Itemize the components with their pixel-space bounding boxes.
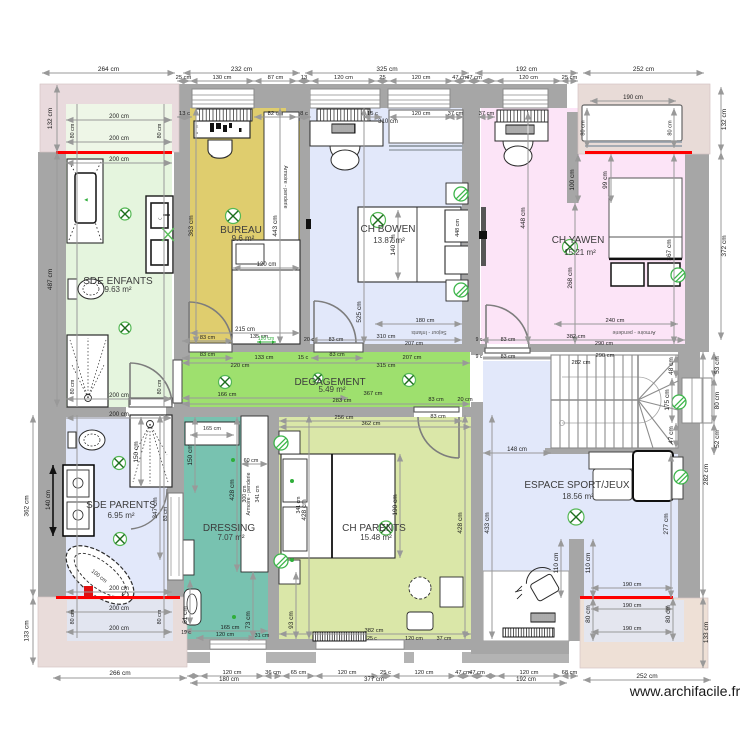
svg-text:99 cm: 99 cm	[602, 171, 609, 189]
svg-text:Armoire - penderie: Armoire - penderie	[282, 166, 288, 209]
svg-text:80 cm: 80 cm	[157, 123, 163, 138]
svg-text:ESPACE SPORT/JEUX: ESPACE SPORT/JEUX	[524, 480, 630, 491]
svg-text:200 cm: 200 cm	[109, 157, 129, 163]
svg-text:362 cm: 362 cm	[24, 495, 31, 516]
svg-text:80 cm: 80 cm	[70, 123, 76, 138]
svg-text:341 cm: 341 cm	[296, 496, 302, 513]
svg-text:83 cm: 83 cm	[501, 354, 516, 360]
svg-text:363 cm: 363 cm	[188, 215, 195, 236]
svg-text:290 cm: 290 cm	[595, 353, 614, 359]
svg-text:18.56 m²: 18.56 m²	[562, 492, 594, 501]
svg-text:190 cm: 190 cm	[622, 626, 641, 632]
svg-text:73 cm: 73 cm	[245, 611, 252, 629]
svg-text:120 cm: 120 cm	[414, 670, 433, 676]
svg-text:Armoire - penderie: Armoire - penderie	[612, 329, 655, 335]
svg-text:180 cm: 180 cm	[415, 318, 434, 324]
svg-text:80 cm: 80 cm	[585, 605, 592, 623]
svg-text:252 cm: 252 cm	[633, 66, 654, 73]
svg-text:362 cm: 362 cm	[361, 421, 380, 427]
svg-text:165 cm: 165 cm	[220, 625, 239, 631]
svg-text:25 cm: 25 cm	[562, 75, 578, 81]
svg-text:9.63 m²: 9.63 m²	[104, 285, 131, 294]
svg-text:80 cm: 80 cm	[665, 605, 672, 623]
svg-text:53 cm: 53 cm	[714, 356, 721, 374]
svg-text:200 cm: 200 cm	[109, 626, 129, 632]
svg-text:120 cm: 120 cm	[258, 336, 274, 342]
svg-text:166 cm: 166 cm	[217, 392, 236, 398]
svg-text:207 cm: 207 cm	[405, 341, 424, 347]
svg-text:9 c: 9 c	[476, 354, 483, 360]
svg-text:268 cm: 268 cm	[567, 267, 574, 288]
svg-text:9.6 m²: 9.6 m²	[232, 234, 255, 243]
svg-text:80 cm: 80 cm	[157, 379, 163, 394]
svg-text:140 cm: 140 cm	[46, 490, 52, 510]
svg-text:120 cm: 120 cm	[519, 75, 538, 81]
svg-text:282 cm: 282 cm	[571, 360, 590, 366]
svg-text:310 cm: 310 cm	[376, 334, 395, 340]
svg-text:372 cm: 372 cm	[721, 235, 728, 256]
svg-text:132 cm: 132 cm	[721, 109, 728, 130]
svg-text:15.48 m²: 15.48 m²	[360, 533, 392, 542]
svg-text:13 c: 13 c	[179, 111, 190, 117]
svg-text:428 cm: 428 cm	[301, 499, 308, 520]
svg-text:190 cm: 190 cm	[622, 582, 641, 588]
svg-text:200 cm: 200 cm	[109, 393, 129, 399]
svg-text:433 cm: 433 cm	[484, 512, 491, 533]
svg-text:37 cm: 37 cm	[448, 111, 464, 117]
svg-text:133 cm: 133 cm	[254, 355, 273, 361]
svg-text:CH BOWEN: CH BOWEN	[361, 224, 416, 235]
svg-text:47 cm: 47 cm	[668, 426, 675, 444]
svg-text:190 cm: 190 cm	[623, 95, 643, 101]
svg-text:120 cm: 120 cm	[337, 670, 356, 676]
svg-text:68 cm: 68 cm	[562, 670, 578, 676]
svg-text:7.07 m²: 7.07 m²	[217, 533, 244, 542]
svg-text:25: 25	[379, 75, 385, 81]
svg-text:9 c: 9 c	[476, 337, 483, 343]
svg-text:110 cm: 110 cm	[585, 553, 592, 574]
svg-text:Sejour - Infants: Sejour - Infants	[411, 329, 447, 335]
svg-text:83 cm: 83 cm	[430, 414, 446, 420]
svg-text:180 cm: 180 cm	[219, 677, 239, 683]
svg-text:◀: ◀	[84, 197, 88, 202]
svg-text:200 cm: 200 cm	[109, 136, 129, 142]
svg-text:83 cm: 83 cm	[329, 337, 344, 343]
svg-text:120 cm: 120 cm	[334, 75, 353, 81]
svg-text:428 cm: 428 cm	[457, 512, 464, 533]
svg-text:93 cm: 93 cm	[288, 611, 295, 629]
svg-text:382 cm: 382 cm	[364, 628, 383, 634]
svg-text:13: 13	[301, 75, 307, 81]
svg-text:CH YAWEN: CH YAWEN	[552, 235, 605, 246]
svg-text:60 cm: 60 cm	[244, 458, 259, 464]
svg-text:315 cm: 315 cm	[376, 363, 395, 369]
svg-text:240 cm: 240 cm	[605, 318, 624, 324]
svg-text:◡: ◡	[158, 215, 163, 221]
svg-text:282 cm: 282 cm	[703, 464, 710, 485]
svg-text:www.archifacile.fr: www.archifacile.fr	[629, 684, 741, 700]
svg-text:367 cm: 367 cm	[666, 239, 673, 260]
svg-text:31 cm: 31 cm	[255, 633, 270, 639]
svg-text:13.87 m²: 13.87 m²	[373, 236, 405, 245]
svg-text:448 cm: 448 cm	[520, 207, 527, 228]
svg-text:15 c: 15 c	[298, 355, 309, 361]
svg-text:132 cm: 132 cm	[47, 108, 54, 129]
svg-text:252 cm: 252 cm	[636, 673, 657, 680]
svg-text:277 cm: 277 cm	[663, 513, 670, 534]
svg-text:25 cm: 25 cm	[176, 75, 192, 81]
svg-text:207 cm: 207 cm	[402, 355, 421, 361]
svg-text:110 cm: 110 cm	[553, 553, 560, 574]
svg-text:200 cm: 200 cm	[109, 586, 129, 592]
svg-text:200 cm: 200 cm	[109, 412, 129, 418]
svg-text:310 cm: 310 cm	[378, 119, 398, 125]
svg-text:264 cm: 264 cm	[98, 66, 119, 73]
svg-text:256 cm: 256 cm	[334, 415, 353, 421]
svg-text:443 cm: 443 cm	[272, 215, 279, 236]
svg-text:120 cm: 120 cm	[411, 75, 430, 81]
svg-text:100 cm: 100 cm	[569, 169, 576, 190]
svg-text:37 cm: 37 cm	[479, 111, 495, 117]
svg-text:428 cm: 428 cm	[229, 479, 236, 500]
svg-text:215 cm: 215 cm	[235, 327, 255, 333]
svg-text:220 cm: 220 cm	[230, 363, 249, 369]
svg-text:15.21 m²: 15.21 m²	[564, 248, 596, 257]
svg-text:448 cm: 448 cm	[455, 219, 461, 237]
svg-text:20 cm: 20 cm	[457, 397, 473, 403]
svg-text:19 c: 19 c	[181, 630, 191, 636]
svg-text:SDE PARENTS: SDE PARENTS	[86, 500, 156, 511]
svg-text:130 cm: 130 cm	[212, 75, 231, 81]
svg-text:80 cm: 80 cm	[668, 120, 674, 136]
svg-text:83 cm: 83 cm	[163, 507, 169, 521]
svg-text:120 cm: 120 cm	[257, 262, 277, 268]
svg-text:87 cm: 87 cm	[268, 75, 284, 81]
svg-text:15 c: 15 c	[367, 111, 378, 117]
svg-text:120 cm: 120 cm	[216, 632, 235, 638]
svg-text:133 cm: 133 cm	[703, 622, 710, 643]
svg-text:133 cm: 133 cm	[24, 620, 31, 641]
svg-text:83 cm: 83 cm	[200, 335, 216, 341]
svg-text:290 cm: 290 cm	[595, 341, 614, 347]
svg-text:120 cm: 120 cm	[411, 111, 430, 117]
svg-text:377 cm: 377 cm	[364, 677, 384, 683]
svg-text:120 cm: 120 cm	[222, 670, 241, 676]
svg-text:150 cm: 150 cm	[133, 441, 140, 462]
svg-text:48 cm: 48 cm	[668, 357, 675, 375]
svg-text:192 cm: 192 cm	[516, 66, 537, 73]
svg-text:47 cm: 47 cm	[466, 75, 482, 81]
svg-text:325 cm: 325 cm	[376, 66, 397, 73]
svg-text:36 cm: 36 cm	[265, 670, 281, 676]
svg-text:266 cm: 266 cm	[109, 670, 130, 677]
svg-text:341 cm: 341 cm	[255, 485, 261, 502]
svg-text:367 cm: 367 cm	[363, 391, 382, 397]
svg-text:61 cm: 61 cm	[182, 606, 189, 624]
svg-text:25 c: 25 c	[367, 636, 377, 642]
svg-text:200 cm: 200 cm	[109, 606, 129, 612]
svg-text:83 cm: 83 cm	[329, 352, 345, 358]
svg-text:6.95 m²: 6.95 m²	[107, 511, 134, 520]
svg-text:83 cm: 83 cm	[200, 352, 216, 358]
svg-text:80 cm: 80 cm	[581, 120, 587, 136]
svg-text:190 cm: 190 cm	[392, 494, 399, 515]
svg-text:52 cm: 52 cm	[714, 430, 721, 448]
svg-text:382 cm: 382 cm	[566, 334, 585, 340]
svg-text:192 cm: 192 cm	[516, 677, 536, 683]
svg-text:83 cm: 83 cm	[428, 397, 444, 403]
svg-text:120 cm: 120 cm	[405, 636, 423, 642]
svg-text:8 c: 8 c	[300, 111, 308, 117]
svg-text:148 cm: 148 cm	[507, 447, 527, 453]
svg-text:80 cm: 80 cm	[70, 609, 76, 624]
svg-text:80 cm: 80 cm	[714, 392, 721, 410]
svg-text:65 cm: 65 cm	[291, 670, 307, 676]
svg-text:300 cm: 300 cm	[242, 485, 248, 502]
svg-text:20 c: 20 c	[304, 337, 314, 343]
svg-text:83 cm: 83 cm	[501, 337, 516, 343]
svg-text:200 cm: 200 cm	[109, 114, 129, 120]
svg-text:487 cm: 487 cm	[47, 269, 54, 290]
svg-text:525 cm: 525 cm	[356, 301, 363, 322]
svg-text:190 cm: 190 cm	[622, 603, 641, 609]
svg-text:47 cm: 47 cm	[469, 670, 485, 676]
svg-text:120 cm: 120 cm	[519, 670, 538, 676]
svg-text:37 cm: 37 cm	[437, 636, 452, 642]
svg-text:283 cm: 283 cm	[332, 398, 351, 404]
svg-text:5.49 m²: 5.49 m²	[318, 385, 345, 394]
svg-text:150 cm: 150 cm	[187, 444, 194, 465]
svg-text:175 cm: 175 cm	[664, 389, 671, 410]
svg-text:165 cm: 165 cm	[203, 426, 221, 432]
svg-text:80 cm: 80 cm	[70, 379, 76, 394]
svg-text:80 cm: 80 cm	[157, 609, 163, 624]
svg-text:25 c: 25 c	[380, 670, 391, 676]
svg-text:232 cm: 232 cm	[231, 66, 252, 73]
